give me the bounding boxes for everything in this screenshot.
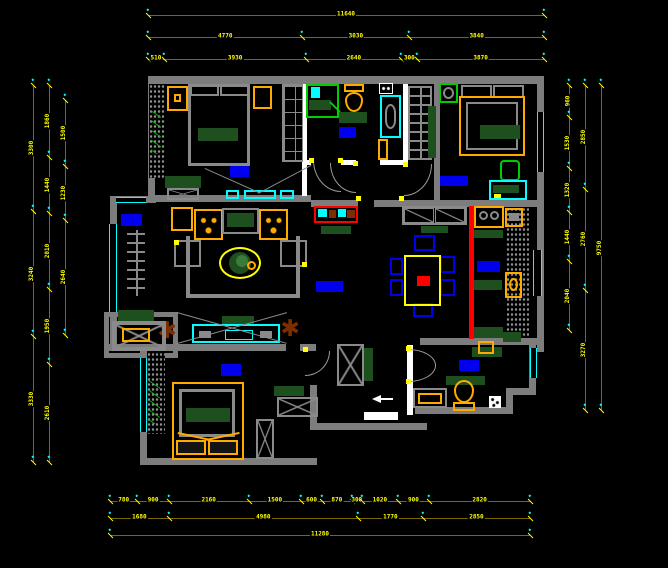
room-label-kitchen [477, 261, 500, 272]
door-hinge-9 [406, 379, 411, 384]
side-table-right-corner [302, 262, 307, 267]
console-flower-brown-b [347, 210, 355, 218]
dimension-label: 2010 [45, 243, 51, 259]
entry-door-leaf [364, 412, 398, 420]
bed3-blanket [186, 408, 230, 422]
hall-cabinet [337, 344, 364, 386]
shower-head-icon [311, 87, 320, 98]
dimension-label: 2610 [45, 405, 51, 421]
dimension-label: 4770 [217, 34, 233, 40]
dimension-line [110, 518, 530, 519]
dimension-chain: 1680498017702850 [110, 513, 530, 523]
dimension-label: 900 [407, 498, 420, 504]
bath2-counter-corner [503, 332, 521, 342]
dimension-label: 1500 [61, 125, 67, 141]
bath1-tall-cabinet [378, 139, 388, 160]
plant-hatch-top-left [151, 110, 161, 154]
dimension-chain: 11640 [148, 10, 544, 20]
kitchen-sink-bowl [509, 278, 518, 291]
dimension-label: 11640 [336, 12, 356, 18]
dining-table-centerpiece [417, 276, 430, 286]
dimension-label: 1020 [372, 498, 388, 504]
door-hinge-7 [303, 347, 308, 352]
dimension-label: 1440 [45, 177, 51, 193]
dimension-label: 2640 [61, 269, 67, 285]
window-bedroom3 [140, 358, 147, 432]
dimension-chain: 285027603270 [580, 85, 590, 410]
dimension-label: 2040 [565, 287, 571, 303]
shoe-cabinet-door-left [404, 208, 434, 223]
wardrobe3-upper [277, 397, 318, 417]
dimension-label: 900 [147, 498, 160, 504]
room-label-bedroom2 [440, 176, 468, 186]
door-hinge-3 [353, 161, 358, 166]
dining-chair-top [414, 235, 435, 251]
shoe-cabinet-mat [421, 226, 448, 233]
coat-rack-plant [127, 230, 145, 296]
plant-box-inner [443, 87, 454, 99]
stove-burner-right [490, 211, 499, 220]
dimension-label: 1950 [45, 318, 51, 334]
dimension-chain: 150012302640 [60, 100, 70, 335]
kitchen-wall-cabinet-door [509, 213, 519, 221]
floor-drain-icon [489, 396, 501, 408]
door-arc-bathroom2 [408, 349, 436, 382]
door-arc-bedroom3 [305, 351, 330, 376]
entry-arrow-tail [381, 398, 393, 400]
closet-side-panel [428, 106, 436, 158]
room-label-bedroom1 [230, 166, 249, 177]
coffee-table-handle [247, 261, 256, 270]
dining-chair-left-2 [390, 279, 403, 296]
dimension-label: 3240 [29, 265, 35, 281]
dimension-label: 1230 [61, 185, 67, 201]
console-vase-cyan-a [318, 209, 327, 217]
dimension-label: 960 [565, 95, 571, 108]
nightstand-left-knob [174, 94, 181, 102]
dimension-label: 4980 [255, 515, 271, 521]
door-hinge-1 [309, 158, 314, 163]
dimension-label: 1440 [565, 229, 571, 245]
dimension-label: 11280 [310, 532, 330, 538]
toilet2-bowl [454, 380, 474, 403]
room-label-bathroom1 [339, 127, 356, 138]
dimension-label: 3300 [29, 140, 35, 156]
hall-cabinet-side [364, 348, 373, 381]
wardrobe-bedroom1 [282, 84, 304, 162]
dimension-label: 3270 [581, 342, 587, 358]
wardrobe3-tall [256, 419, 274, 459]
bath1-cabinet [339, 112, 367, 123]
bed3-drawer-left [176, 440, 206, 455]
bed1-frame [188, 84, 250, 166]
floor-plan-canvas: 1164047703030384051039302640300387078090… [0, 0, 668, 568]
dimension-label: 1860 [45, 113, 51, 129]
dimension-label: 510 [149, 56, 162, 62]
room-label-bedroom3 [221, 364, 241, 376]
console-vase-cyan-b [338, 209, 346, 217]
dimension-label: 870 [330, 498, 343, 504]
window-bay-left [109, 224, 117, 312]
dimension-label: 2850 [468, 515, 484, 521]
room-label-living [316, 281, 343, 292]
dimension-label: 2640 [346, 56, 362, 62]
bed1-blanket [198, 128, 238, 141]
door-hinge-5 [356, 196, 361, 201]
shower-bench [309, 100, 331, 110]
bedroom3-mat [274, 386, 304, 396]
dimension-label: 3030 [348, 34, 364, 40]
dining-chair-left-1 [390, 258, 403, 275]
armchair-side [171, 207, 193, 231]
dimension-chain: 330032403330 [28, 85, 38, 462]
room-label-balcony [121, 214, 142, 226]
plant-starburst-right-icon: ✱ [281, 312, 299, 342]
door-hinge-4 [403, 162, 408, 167]
door-hinge-8 [406, 346, 411, 351]
balcony-mat [118, 310, 154, 321]
kitchen-counter-2 [474, 280, 502, 290]
window-kitchen [533, 250, 542, 296]
console-flower-brown-a [329, 210, 336, 218]
bath2-vanity-basin [418, 393, 442, 404]
dimension-chain: 477030303840 [148, 32, 544, 42]
dimension-chain: 18601440201019502610 [44, 85, 54, 462]
dimension-label: 1530 [565, 134, 571, 150]
desk-accent [494, 194, 501, 198]
window-bath2 [530, 348, 537, 378]
dimension-label: 2160 [200, 498, 216, 504]
console-mat [321, 226, 351, 234]
dimension-chain: 11280 [110, 530, 530, 540]
dimension-chain: 7809002160150060087030010209002820 [110, 496, 530, 506]
bath2-washer [478, 341, 494, 354]
kitchen-counter-3 [474, 327, 503, 338]
side-table-left-corner [174, 240, 179, 245]
dresser-legs [167, 188, 199, 200]
dimension-chain: 510393026403003870 [148, 54, 544, 64]
dimension-label: 1680 [131, 515, 147, 521]
dimension-chain: 9601530132014402040 [564, 85, 574, 330]
dimension-label: 1770 [382, 515, 398, 521]
dining-chair-right-2 [440, 279, 455, 296]
wall-entry-bottom [310, 423, 427, 430]
dimension-label: 2820 [471, 498, 487, 504]
dimension-label: 2760 [581, 231, 587, 247]
bed3-drawer-right [208, 440, 238, 455]
bed2-blanket [480, 125, 520, 139]
dimension-label: 1500 [267, 498, 283, 504]
window-bay-top [116, 197, 146, 203]
desk-chair-bedroom2 [500, 160, 520, 181]
dimension-label: 3330 [29, 391, 35, 407]
dresser-bedroom1 [165, 176, 201, 188]
dimension-label: 1320 [565, 182, 571, 198]
dimension-label: 3930 [227, 56, 243, 62]
toilet2-tank [453, 402, 475, 411]
dimension-label: 3840 [468, 34, 484, 40]
dimension-label: 600 [305, 498, 318, 504]
door-hinge-2 [338, 158, 343, 163]
washing-machine-icon [379, 83, 393, 94]
stove-burner-left [479, 211, 488, 220]
dimension-label: 9750 [597, 239, 603, 255]
wall-top [148, 76, 544, 84]
toilet1-bowl [345, 92, 363, 112]
kitchen-counter-1 [474, 230, 503, 238]
plant-hatch-bedroom3 [149, 378, 160, 424]
desk-top [493, 185, 519, 193]
toilet1-tank [344, 84, 364, 92]
shoe-cabinet-door-right [435, 208, 465, 223]
window-bedroom2 [537, 112, 544, 172]
bed1-headboard-left [190, 85, 219, 96]
dimension-label: 780 [117, 498, 130, 504]
nightstand-right [253, 86, 272, 109]
dimension-label: 3870 [472, 56, 488, 62]
dimension-label: 2850 [581, 129, 587, 145]
washbasin-bowl [385, 104, 396, 129]
tv-console-bedroom1-c [280, 190, 294, 199]
entry-direction-arrow [372, 395, 381, 403]
dimension-chain: 9750 [596, 85, 606, 410]
balcony-washer-inner [122, 328, 150, 342]
sofa-center-cushion [227, 213, 254, 227]
tv-console-bedroom1-a [226, 190, 239, 199]
door-arc-closet-right [404, 164, 432, 196]
bed1-headboard-right [220, 85, 249, 96]
dimension-line [110, 501, 530, 502]
room-label-bathroom2 [459, 360, 479, 371]
door-hinge-6 [399, 196, 404, 201]
dining-chair-right-1 [440, 256, 455, 273]
